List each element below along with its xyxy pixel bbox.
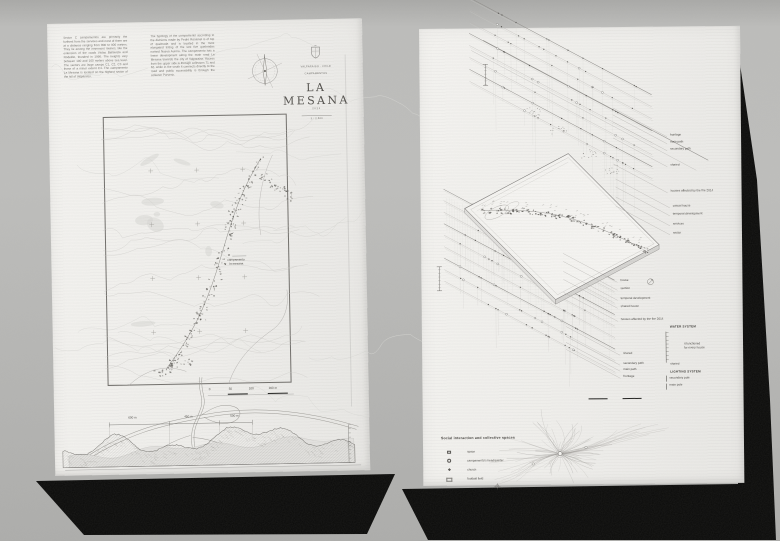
layer-label: shared house	[621, 305, 639, 308]
layer-label: houses affected by the fire 2014	[671, 189, 714, 192]
lighting-legend-item: secondary pole	[669, 376, 689, 379]
layer-label: sector	[673, 231, 681, 234]
crest-icon	[309, 45, 321, 60]
label-leader-lines	[419, 26, 744, 486]
layer-label: house	[620, 279, 628, 282]
layer-label: shared	[623, 352, 632, 355]
layer-label: shared	[670, 164, 679, 167]
social-legend: Social interaction and collective spaces…	[441, 435, 612, 491]
layer-label: main path	[623, 368, 636, 371]
map-frame: campamento la mesana	[103, 114, 292, 386]
layer-label: section	[620, 287, 630, 290]
layer-label: services	[673, 222, 684, 225]
layer-label: temporal development	[621, 297, 651, 300]
social-legend-title: Social interaction and collective spaces	[441, 436, 515, 440]
water-legend-item: shared	[670, 363, 679, 366]
intro-paragraph-2: The typology of the campamento according…	[150, 34, 215, 85]
lighting-legend-item: main pole	[669, 383, 682, 386]
layer-label: temporal development	[673, 212, 703, 215]
social-legend-label: church	[467, 468, 476, 471]
section-dim-label: 600 m	[128, 416, 136, 419]
section-dim-label: 450 m	[184, 415, 192, 418]
intro-text-2: The typology of the campamento according…	[150, 34, 215, 78]
social-legend-label: campamento's headquarter	[467, 459, 503, 462]
intro-text-1: Sector C campamentos are primarily the f…	[63, 36, 128, 80]
title-eyebrow-1: VALPARAISO · CHILE	[274, 64, 358, 69]
topographic-map-drawing	[104, 115, 293, 387]
layer-label: frontage	[670, 133, 681, 136]
map-scale-bar: 0 50 100 200 m	[200, 385, 300, 399]
scale-note: 1 : 2.500	[275, 117, 359, 122]
space-symbol	[447, 450, 451, 454]
social-legend-label: space	[467, 450, 475, 453]
terrain-section-drawing	[62, 410, 363, 473]
map-label-line-2: la mesana	[229, 262, 243, 265]
layer-label: frontage	[623, 375, 634, 378]
title-eyebrow-2: CAMPAMENTOS	[274, 71, 358, 76]
layer-label: secondary path	[623, 362, 644, 365]
water-legend-note-2: for every house	[684, 346, 705, 349]
scalebar-tick: 200 m	[269, 387, 277, 390]
right-poster-sheet: frontage main path secondary path shared…	[419, 26, 744, 486]
social-legend-label: football field	[467, 477, 483, 480]
map-label-line-1: campamento	[227, 258, 244, 261]
intro-paragraph-1: Sector C campamentos are primarily the f…	[63, 36, 128, 91]
football-field-symbol	[446, 478, 452, 482]
headquarter-symbol	[447, 459, 451, 463]
section-dim-label: 500 m	[230, 415, 238, 418]
layer-label: houses affected by the fire 2014	[621, 318, 664, 321]
layer-label: main path	[670, 140, 683, 143]
scalebar-tick: 50	[229, 388, 232, 391]
scalebar-tick: 0	[209, 388, 211, 391]
layer-label: casual house	[673, 204, 691, 207]
poster-title: LA MESANA	[274, 80, 358, 108]
scalebar-line	[208, 394, 294, 396]
scale-dash	[623, 398, 642, 400]
terrain-section: 600 m 450 m 500 m	[62, 410, 363, 475]
scalebar-tick: 100	[249, 387, 254, 390]
scale-dash	[589, 398, 608, 400]
left-poster-sheet: Sector C campamentos are primarily the f…	[47, 18, 370, 476]
lighting-legend-title: LIGHTING SYSTEM	[670, 370, 701, 373]
water-legend-note-1: it functioned	[684, 342, 700, 345]
title-block: VALPARAISO · CHILE CAMPAMENTOS LA MESANA…	[273, 44, 358, 125]
water-legend-title: WATER SYSTEM	[670, 325, 696, 328]
church-symbol	[447, 468, 450, 471]
layer-label: secondary path	[670, 147, 691, 150]
